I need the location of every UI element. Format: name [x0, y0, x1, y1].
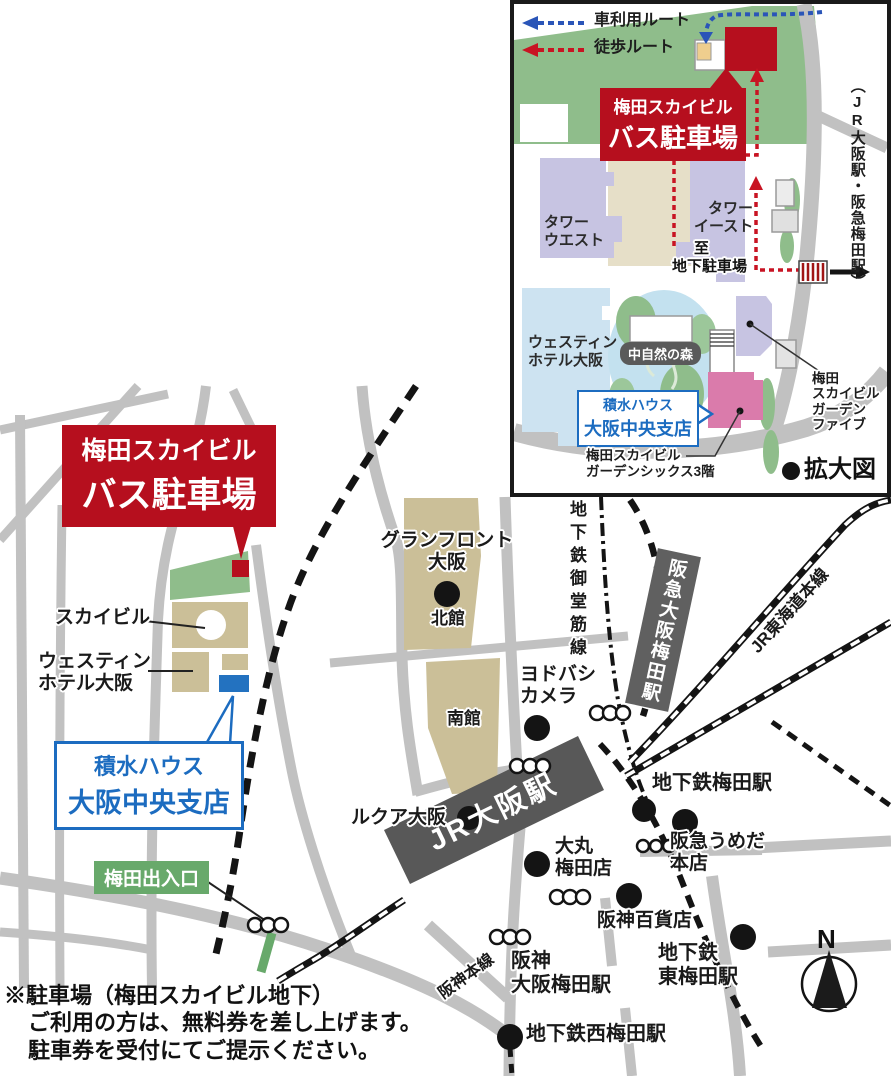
- label-north-building: 北館: [431, 609, 465, 629]
- label-subway-umeda: 地下鉄梅田駅: [652, 772, 772, 796]
- umeda-exit-box: 梅田出入口: [94, 861, 209, 894]
- label-midosuji-line: 地下鉄御堂筋線: [566, 500, 586, 661]
- label-to-underground-parking: 至 地下駐車場: [672, 240, 747, 275]
- inset-sekisui-line1: 積水ハウス: [579, 395, 697, 415]
- inset-banner-line1: 梅田スカイビル: [600, 93, 746, 118]
- subway-umeda-dot: [632, 798, 656, 822]
- dashed-line-southeast: [772, 722, 891, 806]
- label-garden-five: 梅田 スカイビル ガーデン ファイブ: [812, 371, 880, 433]
- label-daimaru: 大丸 梅田店: [555, 836, 612, 881]
- banner-line1: 梅田スカイビル: [62, 431, 276, 467]
- label-grand-front: グランフロント 大阪: [380, 530, 514, 575]
- inset-bus-parking-banner: 梅田スカイビル バス駐車場: [600, 88, 746, 161]
- hanshin-dept-dot: [616, 883, 642, 909]
- sekisui-house-building: [219, 675, 249, 692]
- nature-forest-pill: 中自然の森: [620, 342, 701, 365]
- banner-line2: バス駐車場: [62, 467, 276, 518]
- label-nishi-umeda: 地下鉄西梅田駅: [526, 1023, 666, 1047]
- enlarged-inset-map: 車利用ルート 徒歩ルート 梅田スカイビル バス駐車場 タワー ウエスト タワー …: [510, 0, 891, 497]
- label-south-building: 南館: [447, 709, 481, 729]
- label-enlarged-map: 拡大図: [804, 456, 876, 484]
- bus-parking-marker: [232, 560, 249, 577]
- legend-car-label: 車利用ルート: [594, 12, 690, 31]
- sky-building-circle: [196, 610, 226, 640]
- green-road-segment: [261, 933, 272, 972]
- umeda-access-map: 梅田スカイビル バス駐車場 スカイビル ウェスティン ホテル大阪 積水ハウス 大…: [0, 0, 891, 1076]
- note-line1: ※駐車場（梅田スカイビル地下）: [4, 982, 422, 1009]
- sekisui-line1: 積水ハウス: [57, 749, 241, 781]
- parking-note: ※駐車場（梅田スカイビル地下） ご利用の方は、無料券を差し上げます。 駐車券を受…: [4, 982, 422, 1064]
- label-yodobashi: ヨドバシ カメラ: [520, 664, 596, 709]
- inset-sekisui-box: 積水ハウス 大阪中央支店: [577, 390, 699, 447]
- enlarged-map-dot: [782, 462, 800, 480]
- label-hanshin-umeda-station: 阪神 大阪梅田駅: [511, 950, 611, 997]
- sekisui-line2: 大阪中央支店: [57, 781, 241, 820]
- label-jr-hankyu-stations: （JR大阪駅・阪急梅田駅）: [848, 78, 866, 358]
- note-line3: 駐車券を受付にてご提示ください。: [4, 1037, 422, 1064]
- label-hanshin-dept: 阪神百貨店: [597, 910, 692, 932]
- inset-banner-line2: バス駐車場: [600, 118, 746, 155]
- legend-walk-label: 徒歩ルート: [594, 39, 674, 58]
- label-tower-east: タワー イースト: [694, 200, 753, 235]
- grand-front-dot: [434, 581, 460, 607]
- label-inset-westin: ウェスティン ホテル大阪: [528, 334, 617, 369]
- nishi-umeda-dot: [497, 1024, 523, 1050]
- inset-sekisui-line2: 大阪中央支店: [579, 415, 697, 441]
- sekisui-house-box: 積水ハウス 大阪中央支店: [54, 741, 244, 830]
- label-higashi-umeda: 地下鉄 東梅田駅: [658, 942, 738, 989]
- label-hankyu-dept: 阪急うめだ 本店: [670, 831, 765, 876]
- daimaru-dot: [524, 851, 550, 877]
- yodobashi-dot: [524, 715, 550, 741]
- compass-n-label: N: [817, 924, 836, 955]
- note-line2: ご利用の方は、無料券を差し上げます。: [4, 1009, 422, 1036]
- compass-icon: [802, 950, 856, 1011]
- label-garden-six: 梅田スカイビル ガーデンシックス3階: [586, 448, 715, 480]
- label-sky-building: スカイビル: [55, 607, 150, 629]
- legend-car-arrow: [522, 16, 586, 30]
- bus-parking-banner: 梅田スカイビル バス駐車場: [62, 425, 276, 527]
- inset-bus-parking: [725, 27, 777, 71]
- sekisui-pointer: [206, 696, 233, 744]
- label-westin-hotel: ウェスティン ホテル大阪: [38, 651, 151, 696]
- label-tower-west: タワー ウエスト: [544, 214, 604, 249]
- inset-arch-building: [630, 316, 692, 342]
